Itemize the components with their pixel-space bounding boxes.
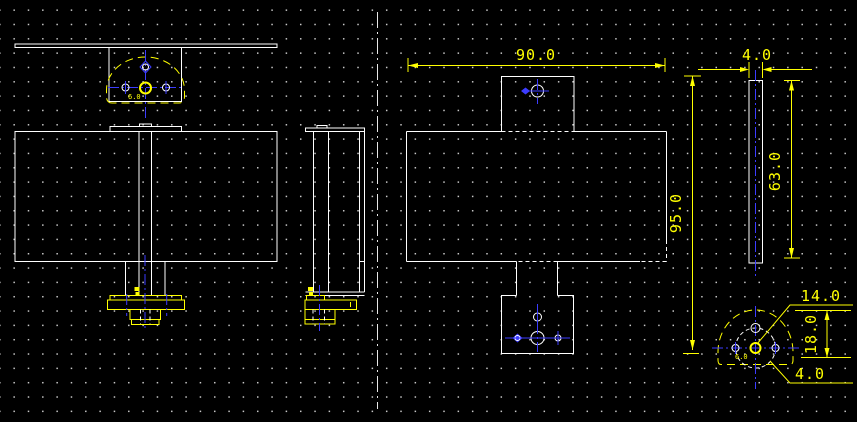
front-view	[15, 124, 277, 331]
dim-plan-width: 90.0	[408, 46, 665, 72]
bolt-mark	[136, 292, 140, 295]
svg-text:95.0: 95.0	[667, 193, 685, 233]
bar-side-view	[749, 70, 763, 277]
dim-bar-length: 63.0	[766, 81, 800, 259]
dim-center-hole-bottom: 6.0	[735, 353, 748, 361]
svg-text:90.0: 90.0	[516, 46, 556, 64]
top-bar-front	[15, 44, 277, 48]
cad-canvas[interactable]: 6.0	[0, 0, 857, 422]
plan-view	[407, 77, 667, 354]
side-view	[305, 126, 365, 332]
svg-text:4.0: 4.0	[795, 365, 825, 383]
svg-text:18.0: 18.0	[802, 314, 820, 354]
bolt-mark	[308, 287, 313, 291]
bolt-mark	[135, 287, 140, 291]
dim-center-hole-front: 6.0	[128, 93, 141, 101]
dome-head-bottom-view: 6.0	[712, 306, 799, 389]
dome-head-front: 6.0	[107, 48, 185, 122]
cad-drawing: 6.0	[0, 0, 857, 422]
svg-text:63.0: 63.0	[766, 151, 784, 191]
dim-head-height: 18.0	[795, 311, 851, 358]
bolt-mark	[309, 292, 313, 295]
svg-text:14.0: 14.0	[801, 287, 841, 305]
svg-text:4.0: 4.0	[742, 46, 772, 64]
dim-overall-height: 95.0	[667, 76, 701, 354]
